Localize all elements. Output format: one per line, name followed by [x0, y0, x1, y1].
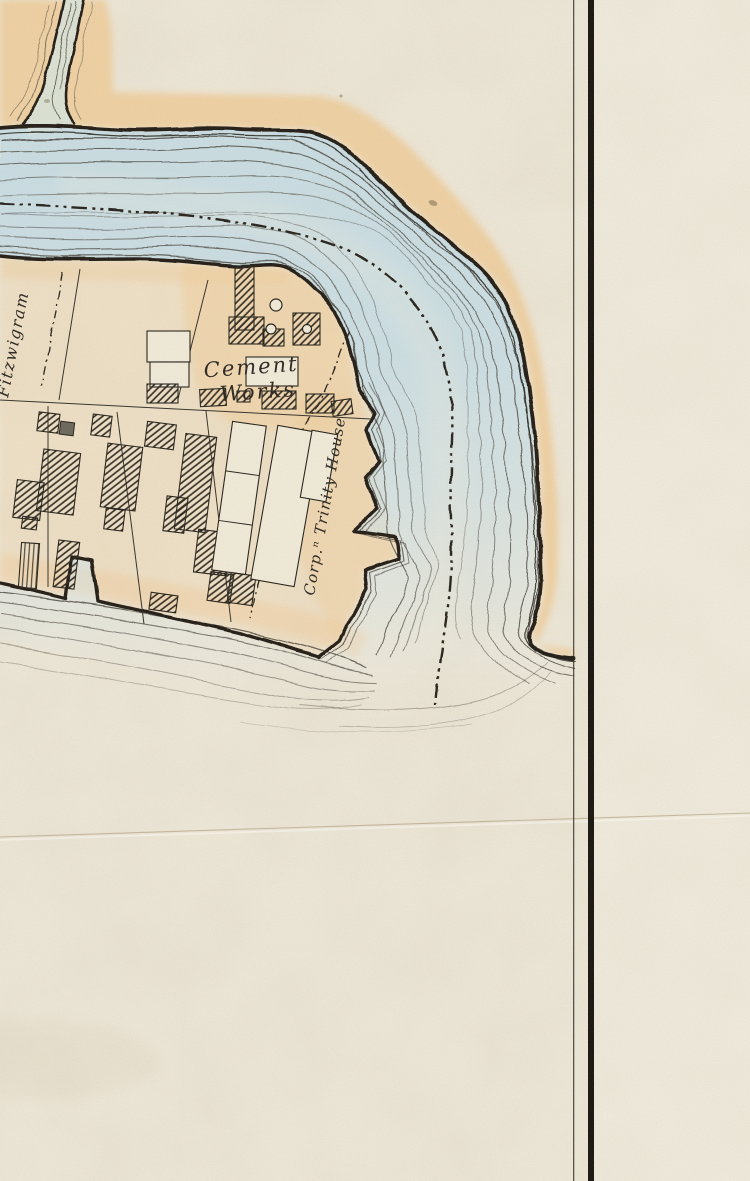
paper-grain	[0, 0, 750, 1181]
map-scan: Fitzwigram Cement Works Corp.ⁿ Trinity H…	[0, 0, 750, 1181]
